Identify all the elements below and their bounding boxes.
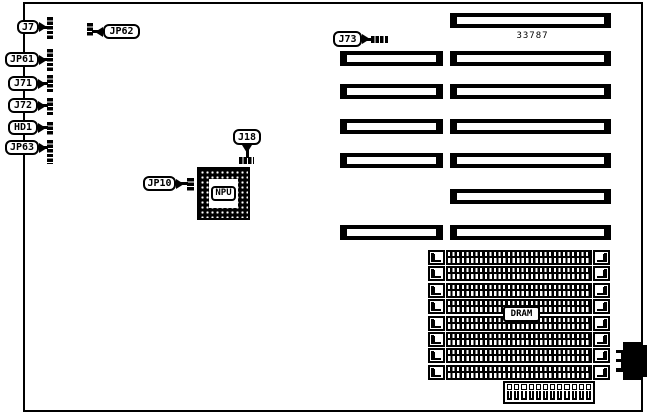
slot-contact-stripe (347, 229, 436, 236)
slot-contact-stripe (457, 157, 604, 164)
simm-latch-left (428, 332, 445, 347)
isa-slot-short-2 (340, 84, 443, 99)
npu-socket-center: NPU (209, 179, 238, 208)
j72-connector (47, 98, 53, 116)
isa-slot-long-4 (450, 119, 611, 134)
jp63-callout: JP63 (5, 140, 39, 155)
j71-label: J71 (14, 78, 32, 89)
part-number-label: 33787 (505, 31, 560, 41)
power-pin (521, 384, 526, 390)
simm-latch-left (428, 283, 445, 298)
jp10-label: JP10 (147, 178, 171, 189)
j7-leader-arrow (39, 22, 47, 32)
simm-pins-top (448, 285, 590, 289)
simm-latch-right (593, 299, 610, 314)
jp61-callout: JP61 (5, 52, 39, 67)
power-pin (507, 384, 512, 390)
simm-socket-6 (428, 332, 610, 347)
jp62-label: JP62 (109, 26, 133, 37)
power-pin (514, 384, 519, 390)
slot-contact-stripe (347, 88, 436, 95)
hd1-callout: HD1 (8, 120, 38, 135)
simm-contacts (446, 283, 592, 298)
j7-label: J7 (22, 22, 34, 33)
simm-latch-left (428, 316, 445, 331)
isa-slot-short-5 (340, 225, 443, 240)
simm-contacts (446, 332, 592, 347)
simm-pins-top (448, 301, 590, 305)
simm-latch-right (593, 348, 610, 363)
simm-socket-7 (428, 348, 610, 363)
isa-slot-long-2 (450, 51, 611, 66)
j73-connector (371, 36, 389, 43)
power-pin (536, 391, 541, 400)
slot-contact-stripe (457, 229, 604, 236)
simm-contacts (446, 266, 592, 281)
power-pin (564, 384, 569, 390)
dram-label: DRAM (503, 306, 540, 322)
slot-contact-stripe (457, 123, 604, 130)
simm-latch-right (593, 250, 610, 265)
npu-label: NPU (211, 186, 235, 201)
j18-leader-arrow (242, 145, 252, 153)
simm-latch-right (593, 365, 610, 380)
slot-contact-stripe (347, 55, 436, 62)
simm-pins-top (448, 367, 590, 371)
power-pin (579, 384, 584, 390)
j18-label: J18 (238, 132, 256, 143)
j73-callout: J73 (333, 31, 362, 47)
simm-pins-bottom (448, 258, 590, 263)
power-pin (572, 391, 577, 400)
power-connector-top-pins (507, 384, 591, 390)
isa-slot-short-4 (340, 153, 443, 168)
isa-slot-long-7 (450, 225, 611, 240)
simm-pins-top (448, 268, 590, 272)
simm-contacts (446, 250, 592, 265)
npu-socket: NPU (197, 167, 250, 220)
power-connector-bottom-pins (507, 391, 591, 400)
j71-leader-arrow (38, 79, 46, 89)
power-pin (550, 391, 555, 400)
simm-latch-left (428, 365, 445, 380)
power-pin (507, 391, 512, 400)
simm-pins-bottom (448, 274, 590, 279)
simm-latch-left (428, 348, 445, 363)
power-pin (543, 384, 548, 390)
j73-label: J73 (338, 34, 356, 45)
j73-leader-arrow (362, 34, 370, 44)
jp61-label: JP61 (10, 54, 34, 65)
j7-callout: J7 (17, 20, 39, 34)
power-pin (521, 391, 526, 400)
slot-contact-stripe (457, 55, 604, 62)
power-pin (514, 391, 519, 400)
power-pin (529, 384, 534, 390)
j18-callout: J18 (233, 129, 261, 145)
isa-slot-long-6 (450, 189, 611, 204)
hd1-leader-arrow (38, 123, 46, 133)
simm-socket-8 (428, 365, 610, 380)
isa-slot-short-1 (340, 51, 443, 66)
simm-latch-left (428, 266, 445, 281)
j18-connector (239, 157, 254, 164)
jp63-label: JP63 (10, 142, 34, 153)
power-pin (579, 391, 584, 400)
simm-socket-1 (428, 250, 610, 265)
keyboard-connector (616, 341, 647, 381)
simm-pins-top (448, 334, 590, 338)
isa-slot-long-1 (450, 13, 611, 28)
simm-latch-left (428, 299, 445, 314)
hd1-label: HD1 (14, 122, 32, 133)
power-pin (557, 384, 562, 390)
power-pin (529, 391, 534, 400)
simm-pins-bottom (448, 356, 590, 361)
simm-pins-bottom (448, 340, 590, 345)
simm-pins-bottom (448, 324, 590, 329)
power-connector (503, 381, 595, 404)
jp10-leader-arrow (176, 179, 184, 189)
power-pin (536, 384, 541, 390)
simm-contacts (446, 365, 592, 380)
power-pin (586, 384, 591, 390)
j71-callout: J71 (8, 76, 38, 91)
simm-pins-top (448, 350, 590, 354)
hd1-connector (47, 122, 53, 136)
slot-contact-stripe (347, 123, 436, 130)
motherboard-diagram: 33787 NPU DRAM J7JP61J71J72HD1JP63JP62J7… (0, 0, 647, 415)
simm-latch-right (593, 316, 610, 331)
jp10-connector (187, 178, 194, 192)
simm-latch-right (593, 266, 610, 281)
power-pin (550, 384, 555, 390)
simm-latch-right (593, 283, 610, 298)
power-pin (543, 391, 548, 400)
jp61-leader-arrow (39, 55, 47, 65)
power-pin (564, 391, 569, 400)
simm-latch-left (428, 250, 445, 265)
simm-pins-bottom (448, 291, 590, 296)
slot-contact-stripe (457, 88, 604, 95)
slot-contact-stripe (347, 157, 436, 164)
simm-pins-bottom (448, 373, 590, 378)
slot-contact-stripe (457, 193, 604, 200)
power-pin (557, 391, 562, 400)
simm-contacts (446, 348, 592, 363)
power-pin (586, 391, 591, 400)
jp10-callout: JP10 (143, 176, 176, 191)
jp63-connector (47, 140, 53, 164)
jp63-leader-arrow (39, 143, 47, 153)
slot-contact-stripe (457, 17, 604, 24)
isa-slot-long-3 (450, 84, 611, 99)
power-pin (572, 384, 577, 390)
jp62-callout: JP62 (103, 24, 140, 39)
simm-socket-2 (428, 266, 610, 281)
jp62-leader-arrow (95, 27, 103, 37)
simm-latch-right (593, 332, 610, 347)
isa-slot-short-3 (340, 119, 443, 134)
simm-pins-top (448, 252, 590, 256)
isa-slot-long-5 (450, 153, 611, 168)
simm-socket-3 (428, 283, 610, 298)
j72-label: J72 (14, 100, 32, 111)
j72-callout: J72 (8, 98, 38, 113)
j72-leader-arrow (38, 101, 46, 111)
